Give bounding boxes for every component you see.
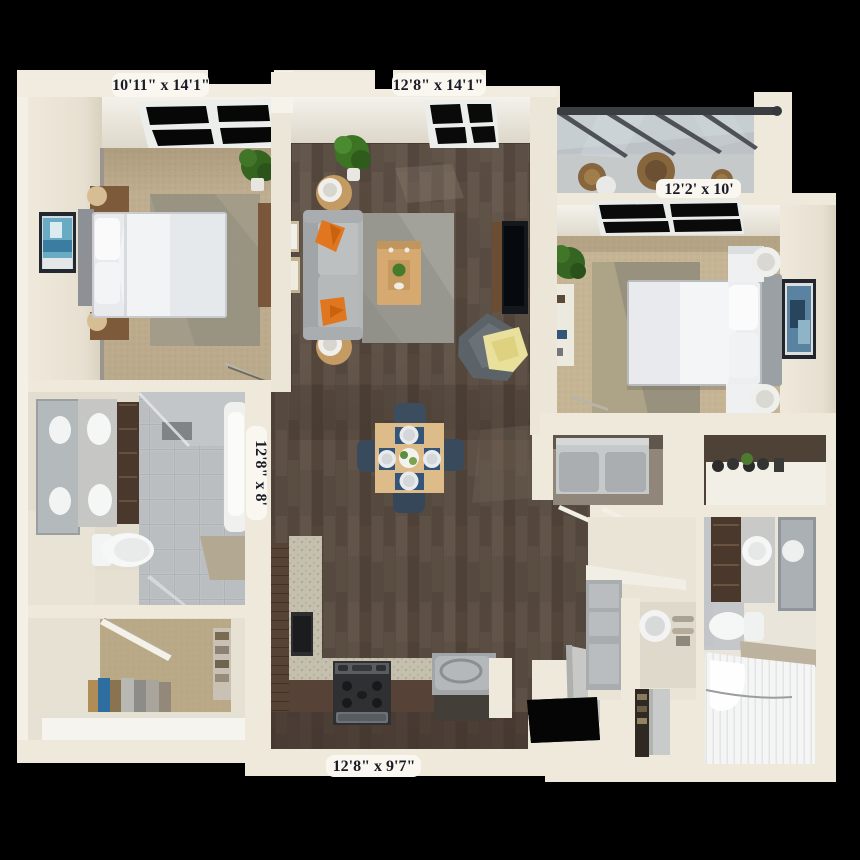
svg-text:10'11" x 14'1": 10'11" x 14'1" <box>112 77 210 94</box>
svg-text:12'2' x 10': 12'2' x 10' <box>664 181 733 198</box>
svg-text:12'8" x 14'1": 12'8" x 14'1" <box>393 77 484 94</box>
svg-text:12'8" x 8': 12'8" x 8' <box>252 440 269 506</box>
svg-text:12'8" x 9'7": 12'8" x 9'7" <box>333 758 416 775</box>
